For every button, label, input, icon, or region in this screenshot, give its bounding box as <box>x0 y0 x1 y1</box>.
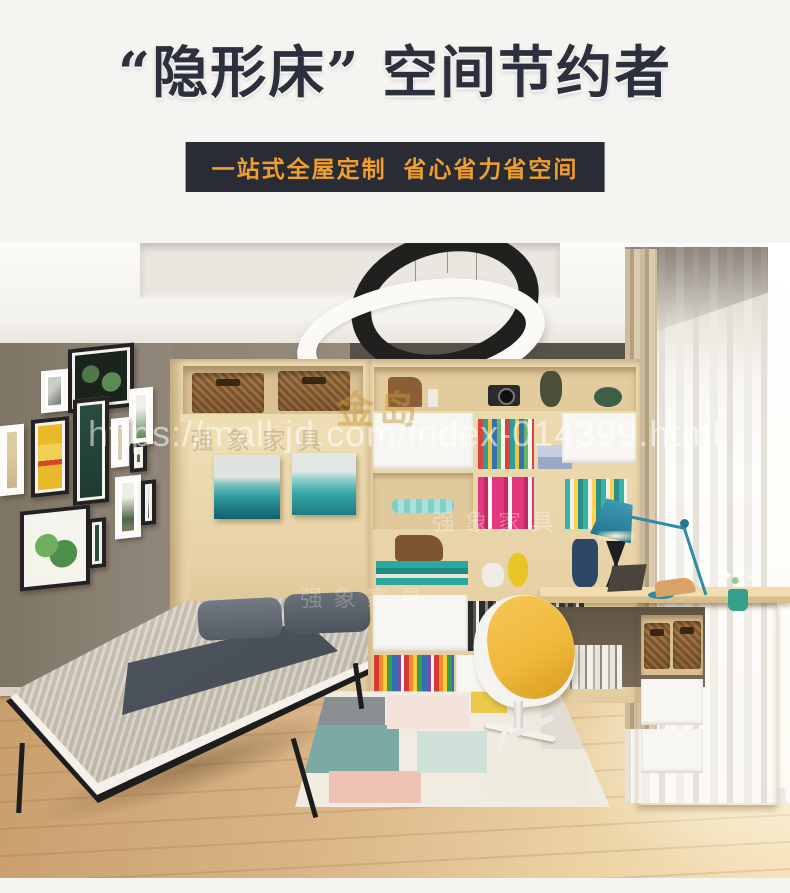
rug-patch <box>387 695 469 729</box>
rug-patch <box>313 697 385 727</box>
rug-patch <box>329 771 421 803</box>
picture-frame <box>129 387 153 447</box>
subtitle-banner: 一站式全屋定制 省心省力省空间 <box>186 142 605 192</box>
rug-patch <box>301 725 399 773</box>
chair-column <box>514 701 523 729</box>
picture-frame <box>31 416 69 498</box>
picture-frame <box>20 504 90 591</box>
drawer-front <box>641 679 703 725</box>
seascape-art <box>292 453 356 515</box>
laptop <box>607 564 647 592</box>
flower-vase <box>728 589 748 611</box>
rug-patch <box>417 731 487 773</box>
drawer-front <box>641 729 703 773</box>
teal-garland <box>392 499 454 513</box>
book-row <box>478 477 534 529</box>
drawer-front <box>562 413 636 463</box>
drawer-front <box>373 413 473 469</box>
picture-frame <box>141 479 156 526</box>
seascape-art <box>214 455 280 519</box>
storage-basket <box>278 371 350 411</box>
navy-vase <box>572 539 598 587</box>
cabinet-shelf-board <box>180 414 368 422</box>
desk-lamp-joint <box>680 519 689 528</box>
picture-frame <box>111 417 129 468</box>
pillow <box>283 592 370 635</box>
desk-lamp-glow <box>598 531 634 541</box>
picture-frame <box>0 424 24 497</box>
book-row <box>478 419 534 469</box>
teal-book-stack <box>376 561 468 585</box>
plant-vase <box>540 371 562 407</box>
drawer-front <box>373 595 467 651</box>
picture-frame <box>115 475 141 540</box>
storage-basket <box>673 621 701 669</box>
picture-frame <box>130 442 147 473</box>
picture-frame <box>41 369 68 414</box>
page-title: “隐形床” 空间节约者 <box>0 28 790 109</box>
camera-lens-icon <box>498 388 515 405</box>
wood-carving <box>395 535 443 561</box>
yellow-vase <box>508 553 528 587</box>
green-gourd <box>594 387 622 407</box>
pillow <box>197 597 283 641</box>
hero-photo: 金岛 https://mall.jd.com/index-014399.html… <box>0 243 790 878</box>
wood-sculpture <box>388 377 422 407</box>
storage-basket <box>644 623 670 669</box>
flower-sprigs <box>720 565 758 591</box>
white-vases <box>482 563 504 587</box>
candle <box>428 389 438 407</box>
picture-frame <box>88 517 106 569</box>
area-rug <box>295 691 610 807</box>
storage-basket <box>192 373 264 413</box>
picture-frame <box>73 396 109 506</box>
